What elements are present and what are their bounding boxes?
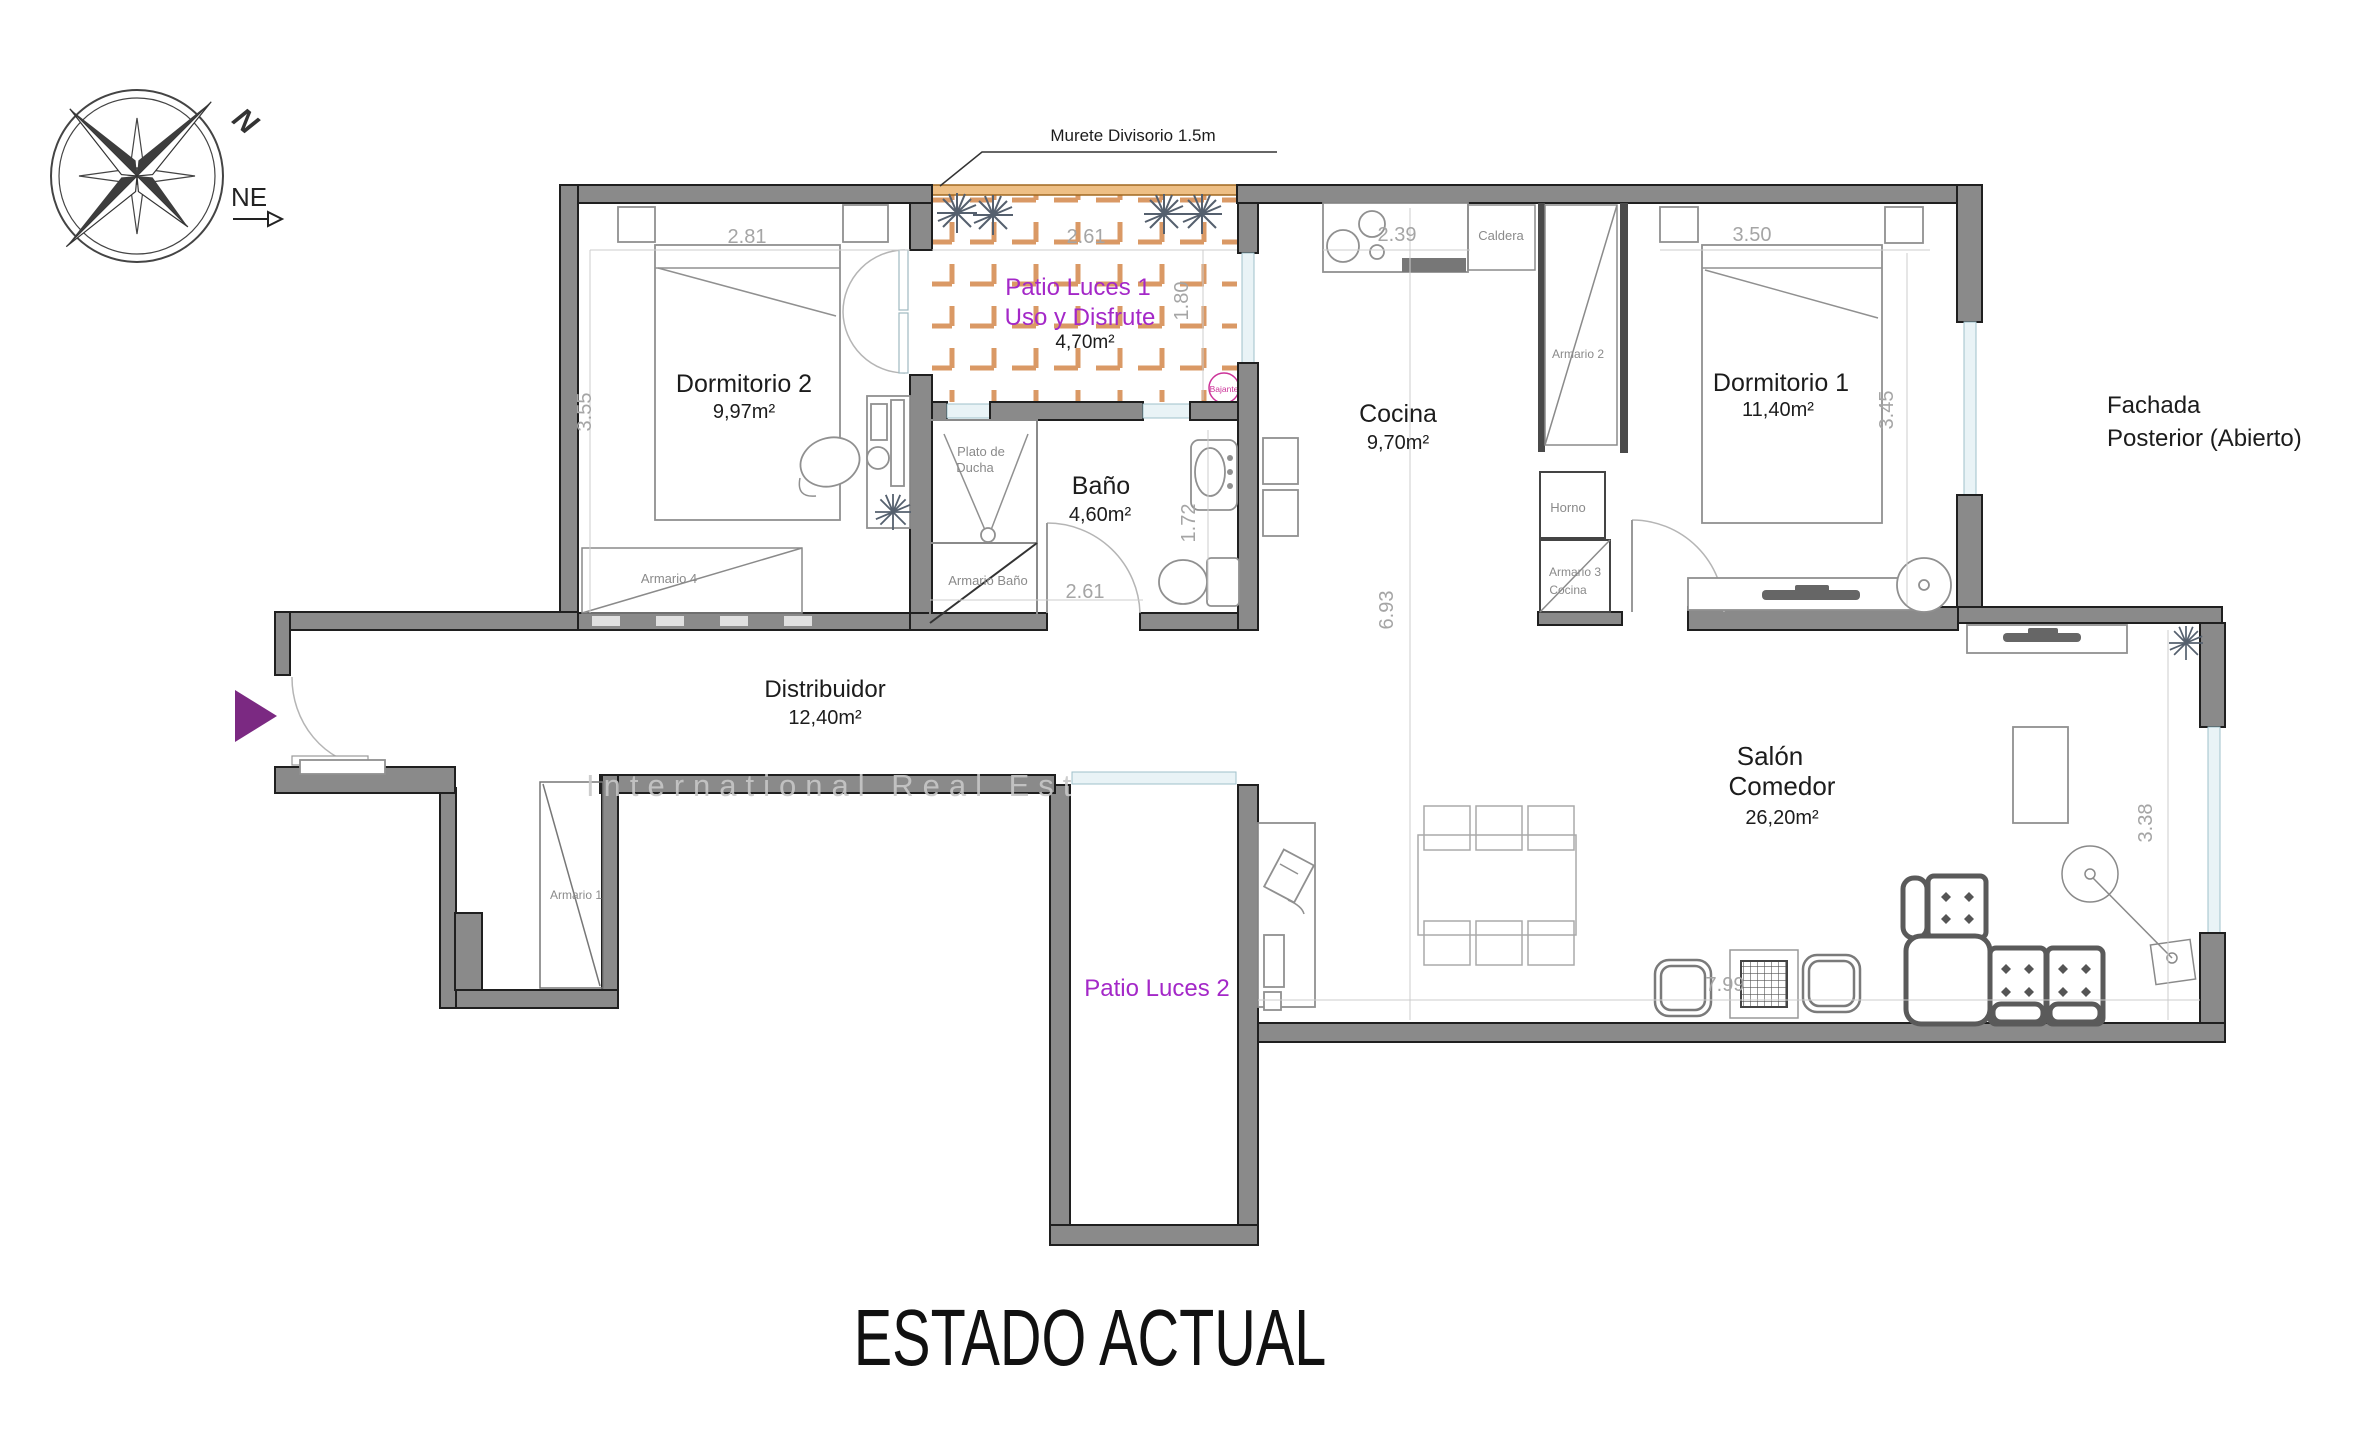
window-dormitorio1 (1964, 322, 1976, 495)
armario2-icon (1545, 205, 1617, 445)
tv-cabinet-icon (1688, 578, 1913, 610)
armario3-label-2: Cocina (1549, 583, 1587, 597)
dim-salon-w: 7.99 (1706, 974, 1745, 996)
compass-rose: N NE (0, 35, 282, 298)
window-cocina (1242, 253, 1254, 363)
armario3-label-1: Armario 3 (1549, 565, 1601, 579)
sofa-icon (1903, 876, 2103, 1024)
dim-dorm1-w: 3.50 (1733, 224, 1772, 246)
armario1-icon (540, 782, 603, 988)
plant-icon (2169, 626, 2203, 660)
area-dormitorio1: 11,40m² (1742, 399, 1814, 421)
walls (275, 185, 2225, 1245)
washing-machine-icon (1897, 558, 1951, 612)
watermark: International Real Est (586, 768, 1080, 803)
room-label-dormitorio1: Dormitorio 1 (1713, 369, 1849, 397)
caldera-label: Caldera (1478, 228, 1524, 243)
entrance-arrow-icon (235, 690, 277, 742)
horno-label: Horno (1550, 500, 1585, 515)
cabinet-icon (1263, 438, 1298, 484)
fachada-label-1: Fachada (2107, 392, 2201, 419)
page-title: ESTADO ACTUAL (854, 1293, 1327, 1383)
area-bano: 4,60m² (1069, 504, 1132, 526)
armario4-label: Armario 4 (641, 571, 697, 586)
room-label-distribuidor: Distribuidor (764, 676, 885, 703)
dim-patio1-w: 2.61 (1067, 226, 1106, 248)
room-label-salon-2: Comedor (1729, 771, 1836, 801)
plato-ducha-label-1: Plato de (957, 444, 1005, 459)
armario2-label: Armario 2 (1552, 347, 1604, 361)
sink-icon (1191, 440, 1237, 510)
window-salon (2208, 727, 2220, 933)
bajante-icon: Bajante (1209, 373, 1239, 403)
plant-icon (875, 494, 911, 530)
dim-cocina-w: 2.39 (1378, 224, 1417, 246)
toilet-icon (1159, 558, 1239, 606)
murete-leader-line (940, 152, 1277, 186)
armario-bano-label: Armario Baño (948, 573, 1027, 588)
plant-icon (973, 195, 1013, 235)
floor-plan-svg: N NE Bajante (0, 0, 2362, 1453)
armario1-label: Armario 1 (550, 888, 602, 902)
tv-cabinet-icon (1967, 625, 2127, 653)
dim-bano-h: 1.72 (1178, 504, 1200, 543)
armchair-inner (1661, 966, 1705, 1010)
cabinet-icon (1263, 490, 1298, 536)
dim-dorm2-h: 3.55 (574, 393, 596, 432)
area-dormitorio2: 9,97m² (713, 401, 776, 423)
plato-ducha-label-2: Ducha (956, 460, 994, 475)
north-label: N (226, 102, 265, 142)
area-patio1: 4,70m² (1055, 332, 1114, 353)
computer-desk-icon (1258, 823, 1315, 1010)
window-patio2 (1072, 772, 1236, 784)
murete-divisorio-wall (930, 185, 1237, 195)
subtitle-patio1: Uso y Disfrute (1005, 304, 1156, 331)
area-distribuidor: 12,40m² (788, 707, 862, 729)
dim-patio1-h: 1.80 (1171, 282, 1193, 321)
room-label-cocina: Cocina (1359, 400, 1437, 428)
ne-arrow-icon (233, 212, 282, 226)
shower-icon (930, 420, 1037, 543)
cocina-fixtures (1263, 203, 1617, 612)
dim-salon-h: 3.38 (2135, 804, 2157, 843)
room-label-salon-1: Salón (1737, 741, 1804, 771)
nightstand-icon (843, 205, 888, 242)
nightstand-icon (618, 207, 655, 242)
dim-bano-w: 2.61 (1066, 581, 1105, 603)
dim-dorm1-h: 3.45 (1876, 391, 1898, 430)
area-cocina: 9,70m² (1367, 432, 1430, 454)
plant-icon (1182, 194, 1222, 234)
armchair-inner (1809, 961, 1854, 1006)
plant-icon (937, 193, 977, 233)
sideboard-icon (300, 760, 385, 774)
murete-label: Murete Divisorio 1.5m (1050, 126, 1215, 145)
room-label-bano: Baño (1072, 472, 1130, 500)
ne-label: NE (231, 182, 267, 212)
fachada-label-2: Posterior (Abierto) (2107, 425, 2302, 452)
entrance-door-arc (292, 677, 367, 767)
nightstand-icon (1885, 207, 1923, 243)
dining-table-icon (1418, 806, 1576, 965)
floor-plan-page: N NE Bajante (0, 0, 2362, 1453)
coffee-table-icon (2013, 727, 2068, 823)
nightstand-icon (1660, 207, 1698, 242)
dim-salon-len: 6.93 (1376, 591, 1398, 630)
bajante-label: Bajante (1210, 384, 1239, 394)
room-label-patio2: Patio Luces 2 (1084, 975, 1229, 1002)
room-label-dormitorio2: Dormitorio 2 (676, 370, 812, 398)
dim-dorm2-w: 2.81 (728, 226, 767, 248)
salon-furniture (1258, 625, 2203, 1024)
area-salon: 26,20m² (1745, 807, 1819, 829)
room-label-patio1: Patio Luces 1 (1005, 274, 1150, 301)
plant-icon (1144, 194, 1184, 234)
